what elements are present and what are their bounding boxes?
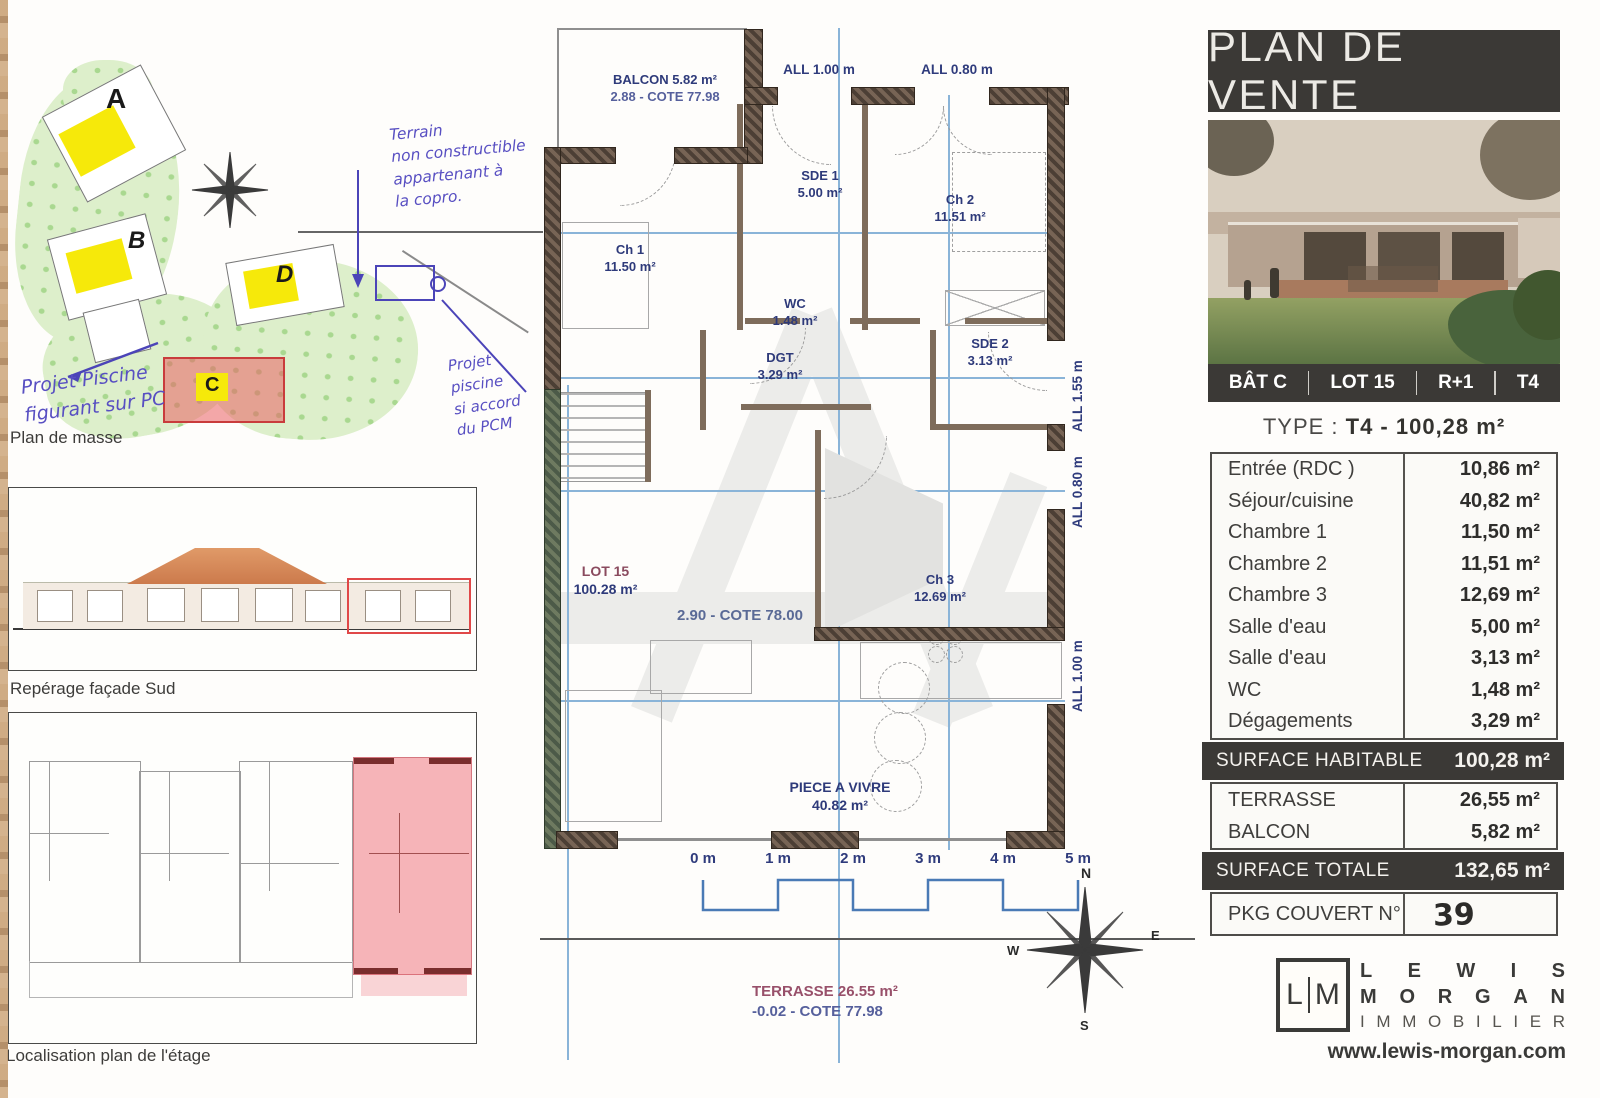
logo-line-morgan: MORGAN <box>1360 986 1565 1009</box>
pkg-label: PKG COUVERT N° <box>1212 894 1405 934</box>
room-label-ch2: Ch 211.51 m² <box>910 192 1010 226</box>
compass-n: N <box>1081 865 1091 881</box>
pkg-handwritten-number: 39 <box>1404 894 1556 934</box>
exterior-wall <box>1048 88 1064 340</box>
balcony-label: BALCON 5.82 m²2.88 - COTE 77.98 <box>585 72 745 106</box>
sale-panel: PLAN DE VENTE BÂT C LOT 15 R+1 <box>1196 0 1600 1098</box>
type-value: T4 - 100,28 m² <box>1346 414 1506 439</box>
cabinet <box>565 690 662 822</box>
exterior-wall <box>852 88 914 104</box>
scale-tick: 4 m <box>978 850 1028 867</box>
row-value: 3,29 m² <box>1405 710 1556 733</box>
row-label: Chambre 2 <box>1212 549 1405 581</box>
house-render-image <box>1208 120 1560 364</box>
lot15-wall <box>429 758 471 764</box>
compass-e: E <box>1151 928 1160 943</box>
row-label: Chambre 3 <box>1212 580 1405 612</box>
building-b-label: B <box>128 227 145 255</box>
facade-window <box>87 590 123 622</box>
logo-line-lewis: LEWIS <box>1360 960 1565 983</box>
facade-window <box>305 590 341 622</box>
room-label-wc: WC1.48 m² <box>755 296 835 330</box>
door-arc <box>943 106 992 155</box>
guide-line <box>545 490 1065 492</box>
table-row: Chambre 312,69 m² <box>1212 580 1556 612</box>
info-type: T4 <box>1517 372 1539 394</box>
facade-window <box>37 590 73 622</box>
scale-tick: 2 m <box>828 850 878 867</box>
balcony-edge <box>557 28 747 30</box>
row-value: 40,82 m² <box>1405 490 1556 513</box>
row-label: TERRASSE <box>1212 784 1405 817</box>
kitchen-island <box>650 640 752 694</box>
room-label-ch3: Ch 312.69 m² <box>890 572 990 606</box>
table-row: Entrée (RDC )10,86 m² <box>1212 454 1556 486</box>
facade-window <box>147 588 185 622</box>
room-label-ch1: Ch 111.50 m² <box>580 242 680 276</box>
row-value: 10,86 m² <box>1405 458 1556 481</box>
handwritten-note-piscine-pcm: Projet piscine si accord du PCM <box>446 341 567 442</box>
row-value: 12,69 m² <box>1405 584 1556 607</box>
scale-tick: 1 m <box>753 850 803 867</box>
lot-info-bar: BÂT C LOT 15 R+1 T4 <box>1208 364 1560 402</box>
surface-habitable-row: SURFACE HABITABLE 100,28 m² <box>1202 742 1564 780</box>
cooktop-burner <box>946 646 963 663</box>
handwritten-note-terrain: Terrain non constructible appartenant à … <box>388 108 575 213</box>
type-line: TYPE : T4 - 100,28 m² <box>1208 414 1560 440</box>
cote-label: 2.90 - COTE 78.00 <box>655 606 825 626</box>
glazed-bay <box>617 838 772 841</box>
areas-table: Entrée (RDC )10,86 m² Séjour/cuisine40,8… <box>1210 452 1558 740</box>
info-floor: R+1 <box>1438 372 1473 394</box>
parking-row: PKG COUVERT N° 39 <box>1210 892 1558 936</box>
facade-window <box>201 588 239 622</box>
exterior-wall <box>1048 510 1064 635</box>
unit-wall <box>49 761 50 881</box>
render-person <box>1270 268 1279 298</box>
lot15-wall <box>399 813 400 913</box>
interior-wall <box>737 104 743 330</box>
panel-title: PLAN DE VENTE <box>1208 23 1560 119</box>
unit-outline <box>29 761 141 963</box>
cooktop-burner <box>928 646 945 663</box>
door-arc <box>620 150 676 206</box>
render-patio-furniture <box>1348 266 1438 292</box>
separator <box>1494 371 1496 395</box>
interior-wall <box>700 330 706 430</box>
facade-label: Repérage façade Sud <box>10 679 175 699</box>
unit-wall <box>139 853 229 854</box>
surface-totale-row: SURFACE TOTALE 132,65 m² <box>1202 852 1564 890</box>
table-row: Chambre 111,50 m² <box>1212 517 1556 549</box>
plan-de-vente-sheet: A B D C Terrain <box>0 0 1600 1098</box>
exterior-wall <box>772 832 858 848</box>
unit-wall <box>29 833 109 834</box>
row-value: 5,82 m² <box>1405 821 1556 844</box>
unit-terrace <box>29 961 353 998</box>
interior-wall <box>930 330 936 430</box>
terrasse-label: TERRASSE 26.55 m² -0.02 - COTE 77.98 <box>752 982 937 1021</box>
lot15-wall <box>424 968 471 974</box>
tree-icon <box>1208 120 1274 176</box>
scale-tick: 3 m <box>903 850 953 867</box>
scale-tick: 0 m <box>678 850 728 867</box>
row-value: 3,13 m² <box>1405 647 1556 670</box>
room-label-sde1: SDE 15.00 m² <box>780 168 860 202</box>
tree-icon <box>1480 120 1560 200</box>
dining-table <box>874 712 926 764</box>
lot15-highlight-terrace <box>361 974 467 996</box>
table-row: Salle d'eau3,13 m² <box>1212 643 1556 675</box>
interior-wall <box>815 628 1064 640</box>
interior-wall <box>741 404 871 410</box>
table-row: Séjour/cuisine40,82 m² <box>1212 486 1556 518</box>
site-plan-label: Plan de masse <box>10 428 122 448</box>
site-compass-icon <box>190 150 270 230</box>
interior-wall <box>965 318 1048 324</box>
row-value: 11,51 m² <box>1405 553 1556 576</box>
row-label: SURFACE TOTALE <box>1216 860 1390 882</box>
separator <box>1308 371 1310 395</box>
unit-wall <box>239 863 339 864</box>
exterior-wall <box>745 88 777 104</box>
table-row: WC1,48 m² <box>1212 675 1556 707</box>
render-wing <box>1518 218 1560 278</box>
compass-w: W <box>1007 943 1020 958</box>
row-value: 100,28 m² <box>1454 749 1550 773</box>
agency-logo: L M LEWIS MORGAN IMMOBILIER <box>1276 958 1566 1050</box>
room-label-sde2: SDE 23.13 m² <box>945 336 1035 370</box>
row-value: 1,48 m² <box>1405 679 1556 702</box>
scale-tick: 5 m <box>1053 850 1103 867</box>
facade-roof <box>127 548 327 584</box>
exterior-wall <box>545 390 560 848</box>
logo-monogram: L M <box>1276 958 1350 1032</box>
logo-line-immobilier: IMMOBILIER <box>1360 1012 1565 1032</box>
window-dim-label: ALL 1.00 m <box>1070 640 1085 712</box>
localisation-box <box>8 712 477 1044</box>
lot15-highlight <box>354 758 471 974</box>
exterior-wall <box>1007 832 1064 848</box>
table-row: Dégagements3,29 m² <box>1212 706 1556 738</box>
row-label: BALCON <box>1212 817 1405 850</box>
compass-rose-icon: N W E S <box>1005 862 1165 1032</box>
scan-edge <box>0 0 8 1098</box>
facade-window <box>255 588 293 622</box>
agency-website: www.lewis-morgan.com <box>1300 1040 1566 1064</box>
row-label: WC <box>1212 675 1405 707</box>
row-label: Dégagements <box>1212 706 1405 738</box>
interior-wall <box>930 424 1048 430</box>
unit-wall <box>169 771 170 881</box>
exterior-wall <box>1048 425 1064 450</box>
localisation-label: Localisation plan de l'étage <box>6 1046 211 1066</box>
render-glass-door <box>1452 232 1504 282</box>
window-dim-label: ALL 1.55 m <box>1070 360 1085 432</box>
lot15-wall <box>354 758 394 764</box>
row-label: Chambre 1 <box>1212 517 1405 549</box>
info-lot: LOT 15 <box>1330 372 1394 394</box>
logo-m: M <box>1315 978 1340 1012</box>
exterior-wall <box>1048 705 1064 848</box>
row-value: 11,50 m² <box>1405 521 1556 544</box>
facade-lot-highlight <box>347 578 471 634</box>
lot15-wall <box>354 968 398 974</box>
type-label: TYPE : <box>1263 414 1339 439</box>
unit-wall <box>269 761 270 891</box>
logo-bar <box>1308 977 1310 1013</box>
panel-title-band: PLAN DE VENTE <box>1208 30 1560 112</box>
row-label: Séjour/cuisine <box>1212 486 1405 518</box>
row-value: 26,55 m² <box>1405 789 1556 812</box>
row-value: 132,65 m² <box>1454 859 1550 883</box>
table-row: Chambre 211,51 m² <box>1212 549 1556 581</box>
room-label-dgt: DGT3.29 m² <box>735 350 825 384</box>
facade-box <box>8 487 477 671</box>
interior-wall <box>850 318 920 324</box>
interior-wall <box>645 390 651 482</box>
lot15-wall <box>369 853 469 854</box>
stairs <box>560 392 647 482</box>
floor-plan: BALCON 5.82 m²2.88 - COTE 77.98 ALL 1.00… <box>540 0 1200 1098</box>
render-person <box>1244 280 1251 300</box>
table-row: Salle d'eau5,00 m² <box>1212 612 1556 644</box>
annex-table: TERRASSE26,55 m² BALCON5,82 m² <box>1210 782 1558 850</box>
compass-s: S <box>1080 1018 1089 1032</box>
row-value: 5,00 m² <box>1405 616 1556 639</box>
balcony-wall <box>675 148 747 163</box>
dining-table <box>878 662 930 714</box>
building-a-label: A <box>106 83 126 115</box>
info-bat: BÂT C <box>1229 372 1287 394</box>
row-label: Salle d'eau <box>1212 643 1405 675</box>
table-row: TERRASSE26,55 m² <box>1212 784 1556 817</box>
building-d-label: D <box>276 261 293 289</box>
window-dim-label: ALL 1.00 m <box>774 62 864 77</box>
window-dim-label: ALL 0.80 m <box>912 62 1002 77</box>
separator <box>1416 371 1418 395</box>
row-label: Salle d'eau <box>1212 612 1405 644</box>
room-label-piece-a-vivre: PIECE A VIVRE40.82 m² <box>755 778 925 814</box>
exterior-wall <box>557 832 617 848</box>
unit-outline <box>239 761 353 963</box>
table-row: BALCON5,82 m² <box>1212 817 1556 850</box>
row-label: Entrée (RDC ) <box>1212 454 1405 486</box>
door-arc <box>895 106 944 155</box>
row-label: SURFACE HABITABLE <box>1216 750 1423 772</box>
lot-label: LOT 15100.28 m² <box>558 562 653 598</box>
door-arc <box>772 106 831 165</box>
interior-wall <box>862 104 868 330</box>
unit-outline <box>139 771 241 963</box>
logo-l: L <box>1286 978 1303 1012</box>
window-dim-label: ALL 0.80 m <box>1070 456 1085 528</box>
glazed-bay <box>858 838 1007 841</box>
